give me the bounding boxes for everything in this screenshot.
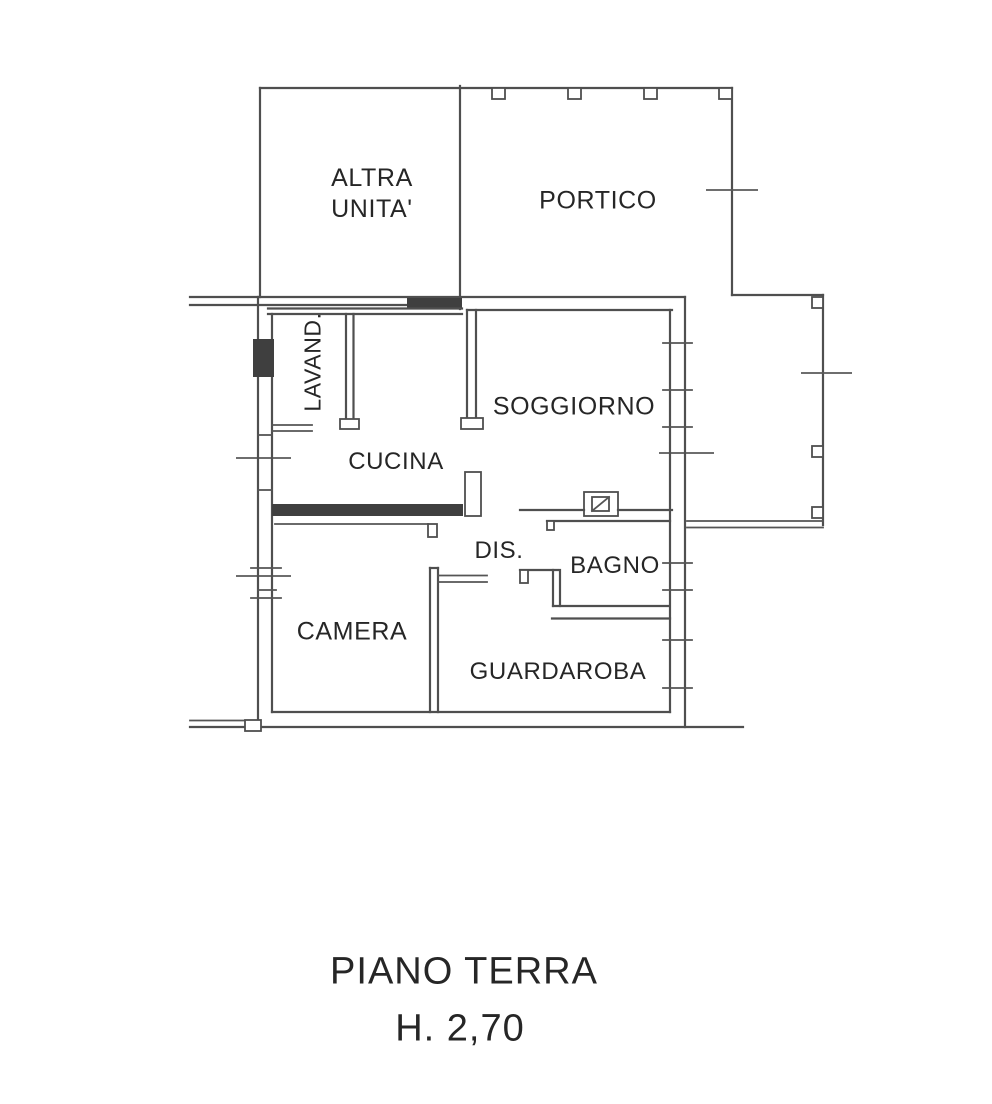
bottom-left-pillar-icon bbox=[245, 720, 261, 731]
room-label-altra-unita-line2: UNITA' bbox=[331, 194, 413, 225]
room-label-altra-unita: ALTRA UNITA' bbox=[331, 163, 413, 225]
interior-walls bbox=[272, 310, 672, 712]
room-label-cucina: CUCINA bbox=[348, 448, 444, 476]
room-label-soggiorno: SOGGIORNO bbox=[493, 393, 655, 422]
floor-plan-page: ALTRA UNITA' PORTICO LAVAND. SOGGIORNO C… bbox=[0, 0, 992, 1104]
room-label-lavanderia: LAVAND. bbox=[300, 312, 327, 411]
room-label-guardaroba: GUARDAROBA bbox=[470, 658, 647, 686]
dimension-tick-marks bbox=[236, 190, 852, 576]
portico-pillar-icons bbox=[492, 88, 823, 518]
portico-outline bbox=[260, 86, 823, 528]
ceiling-height-label: H. 2,70 bbox=[395, 1008, 525, 1051]
room-label-disimpegno: DIS. bbox=[474, 537, 523, 565]
floor-title: PIANO TERRA bbox=[330, 951, 598, 994]
room-label-altra-unita-line1: ALTRA bbox=[331, 163, 413, 194]
room-label-camera: CAMERA bbox=[297, 618, 408, 647]
lavanderia-window-icon bbox=[253, 339, 274, 377]
room-label-portico: PORTICO bbox=[539, 187, 657, 216]
room-label-bagno: BAGNO bbox=[570, 552, 660, 580]
